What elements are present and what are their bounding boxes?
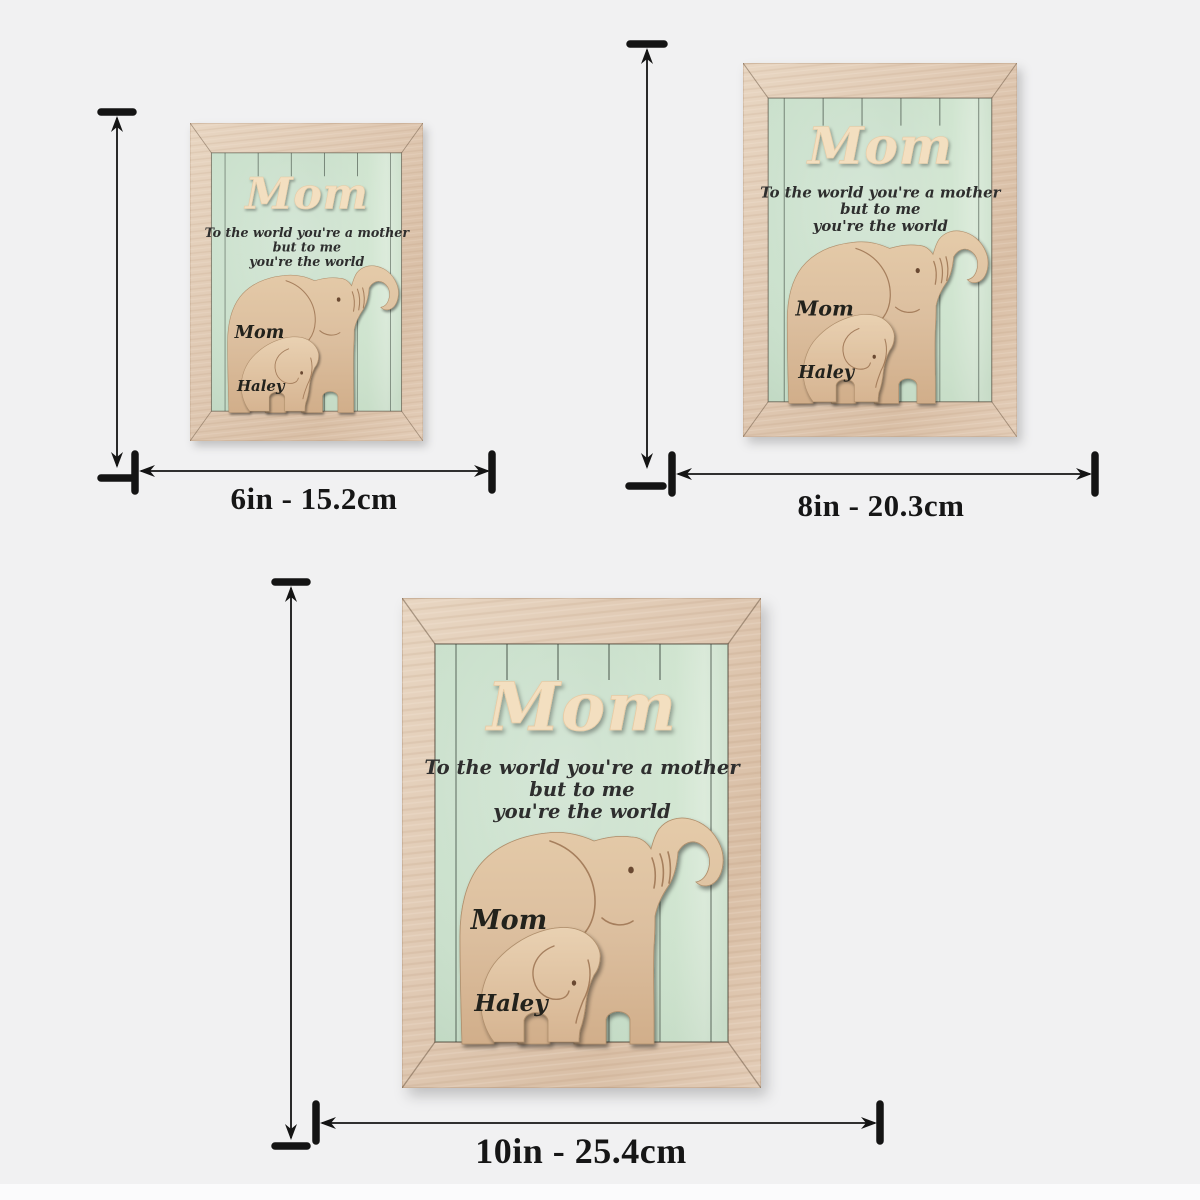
plaque-6in: [190, 123, 423, 441]
plaque-10in: [402, 598, 761, 1088]
size-label-6in: 6in - 15.2cm: [230, 481, 397, 516]
size-label-10in: 10in - 25.4cm: [475, 1131, 686, 1171]
plaque-8in: [743, 63, 1017, 437]
page-background-edge: [0, 1184, 1200, 1200]
size-chart-graphic: Mom To the world you're a mother but to …: [0, 0, 1200, 1200]
size-label-8in: 8in - 20.3cm: [797, 488, 964, 523]
size-chart-canvas: Mom To the world you're a mother but to …: [0, 0, 1200, 1200]
